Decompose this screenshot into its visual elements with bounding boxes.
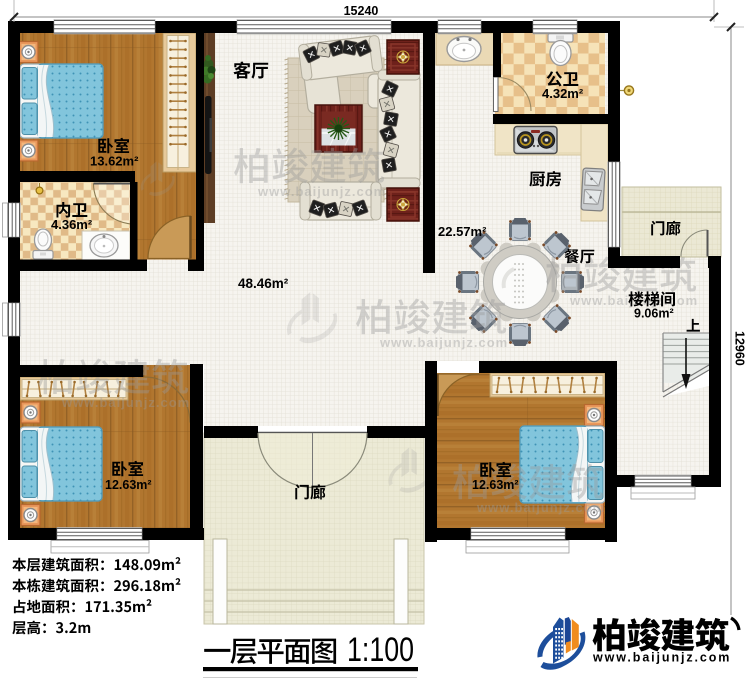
svg-text:12960: 12960 [733, 331, 747, 366]
svg-text:12.63m²: 12.63m² [472, 478, 519, 492]
svg-text:www.baijunjz.com: www.baijunjz.com [379, 335, 508, 350]
svg-text:15240: 15240 [344, 4, 379, 18]
svg-text:1:100: 1:100 [347, 631, 414, 669]
svg-text:4.32m²: 4.32m² [542, 86, 584, 101]
svg-text:www.baijunjz.com: www.baijunjz.com [61, 395, 190, 410]
svg-text:22.57m²: 22.57m² [438, 224, 487, 239]
svg-text:12.63m²: 12.63m² [105, 478, 152, 492]
svg-text:13.62m²: 13.62m² [90, 154, 139, 169]
svg-text:9.06m²: 9.06m² [634, 307, 674, 321]
svg-text:www.baijunjz.com: www.baijunjz.com [476, 500, 605, 515]
svg-text:4.36m²: 4.36m² [51, 217, 93, 232]
svg-text:48.46m²: 48.46m² [238, 276, 289, 291]
svg-text:www.baijunjz.com: www.baijunjz.com [257, 184, 386, 199]
svg-text:www.baijunjz.com: www.baijunjz.com [592, 651, 731, 665]
